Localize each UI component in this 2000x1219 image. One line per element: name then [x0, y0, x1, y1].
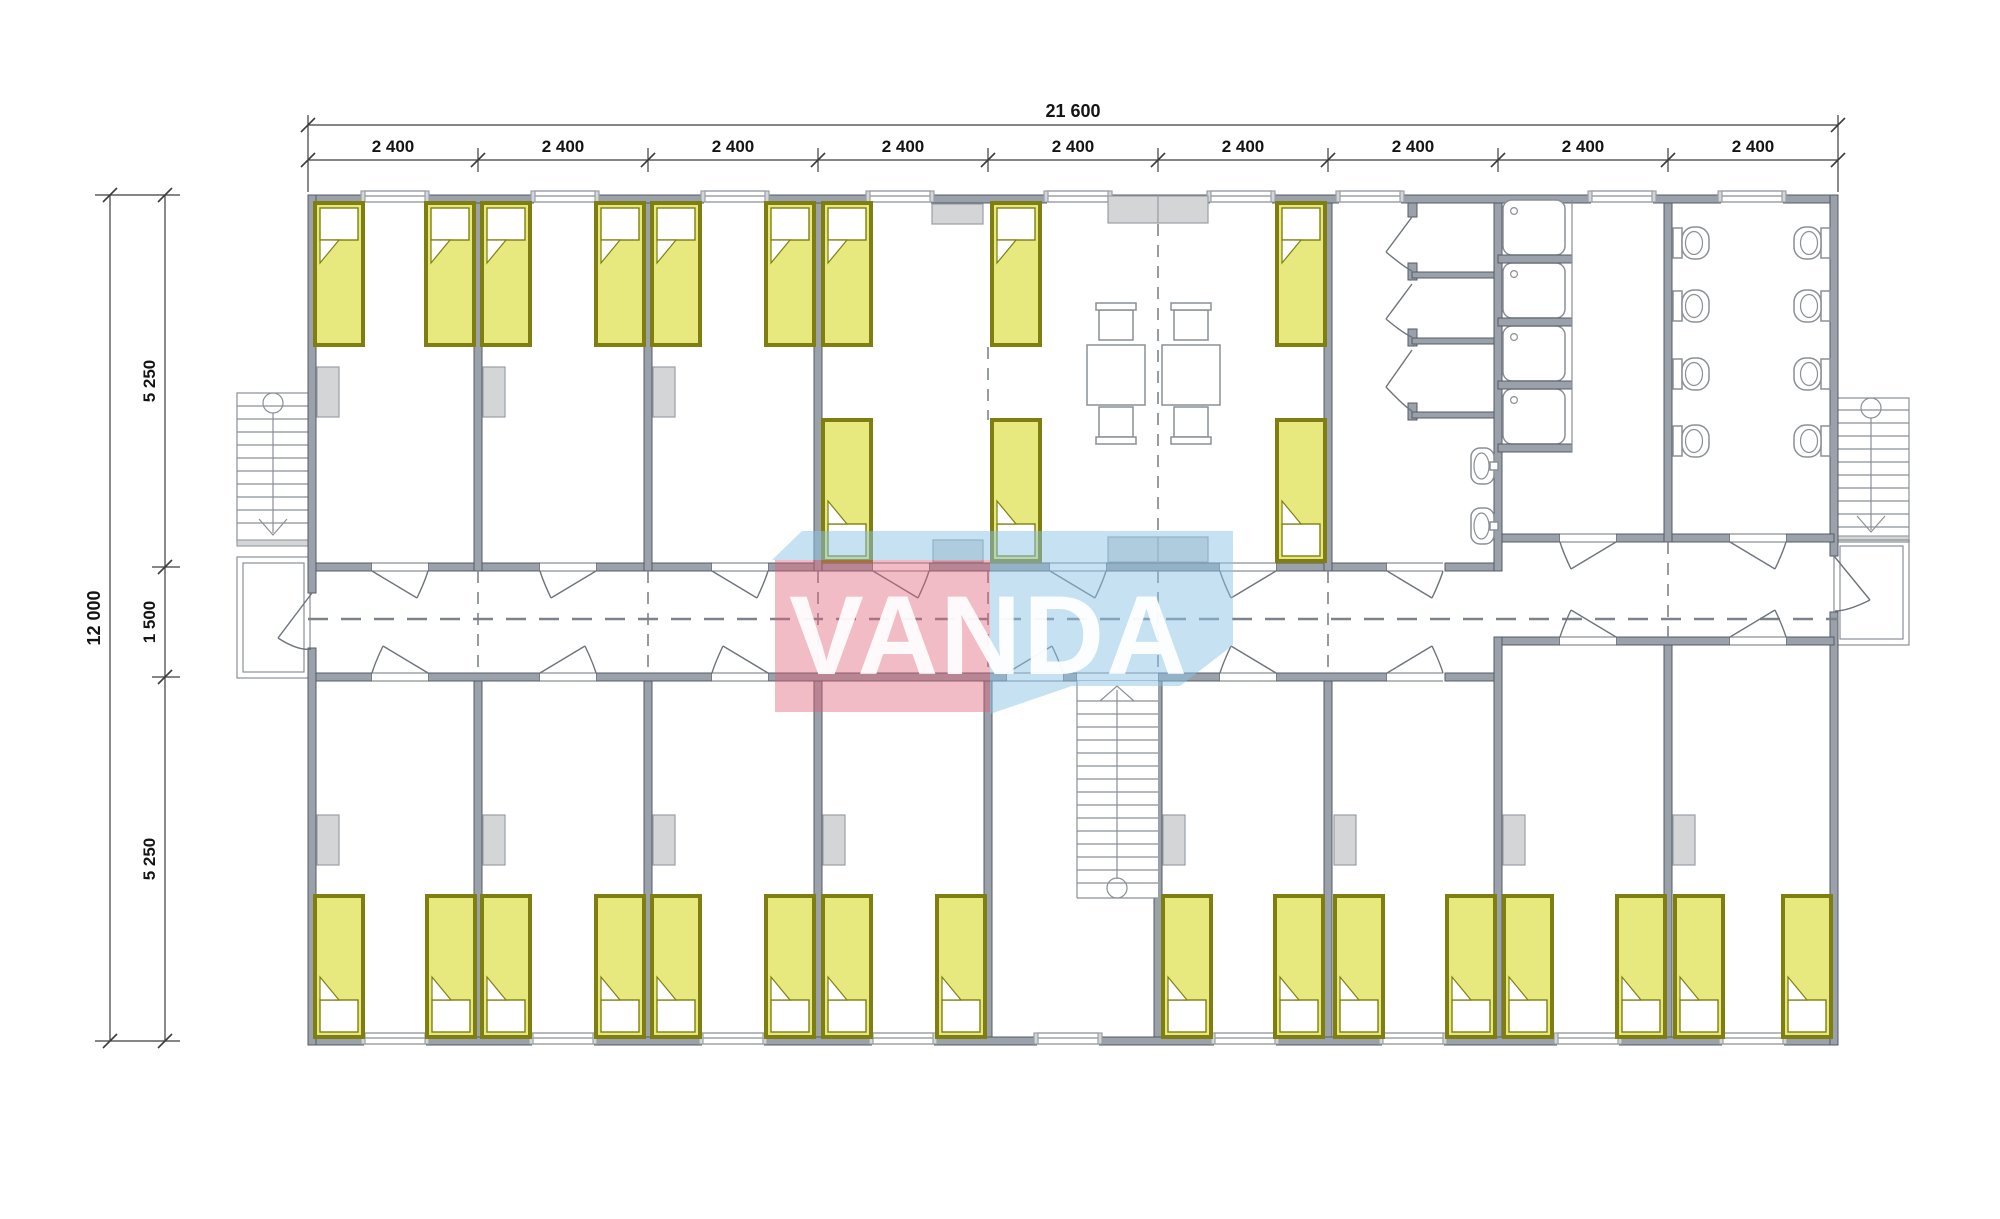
watermark-text: VANDA: [789, 573, 1189, 698]
wardrobes-bottom-rooms: [317, 815, 1695, 865]
dim-seg: 2 400: [1562, 137, 1605, 156]
dim-seg: 2 400: [542, 137, 585, 156]
windows-bottom: [361, 1032, 1787, 1046]
entry-door-left: [278, 593, 312, 649]
dim-seg: 2 400: [1222, 137, 1265, 156]
toilets: [1673, 227, 1830, 457]
floor-plan-page: 21 600 2 400 2 400 2 400 2 400 2 400 2 4…: [0, 0, 2000, 1219]
dining-area: [1087, 303, 1220, 444]
shower-trays: [1498, 200, 1572, 452]
dim-seg: 2 400: [882, 137, 925, 156]
dim-seg: 2 400: [1392, 137, 1435, 156]
dim-total-width: 21 600: [1045, 101, 1100, 121]
dim-total-height: 12 000: [84, 590, 104, 645]
dim-seg: 2 400: [712, 137, 755, 156]
dim-seg: 5 250: [140, 838, 159, 881]
stairs-left-exterior: [237, 393, 310, 678]
dim-seg: 5 250: [140, 360, 159, 403]
dim-seg: 1 500: [140, 601, 159, 644]
beds-bottom-rooms: [315, 896, 1831, 1037]
floor-plan-drawing: 21 600 2 400 2 400 2 400 2 400 2 400 2 4…: [0, 0, 2000, 1219]
stairs-interior: [1077, 681, 1158, 898]
wall-exterior-right: [1830, 195, 1838, 556]
shower-stalls: [1386, 203, 1494, 420]
dim-seg: 2 400: [1732, 137, 1775, 156]
dim-seg: 2 400: [1052, 137, 1095, 156]
stairs-right-exterior: [1834, 398, 1909, 645]
dim-extension-lines-left: [95, 195, 180, 1041]
watermark: VANDA: [772, 531, 1233, 714]
dim-seg: 2 400: [372, 137, 415, 156]
